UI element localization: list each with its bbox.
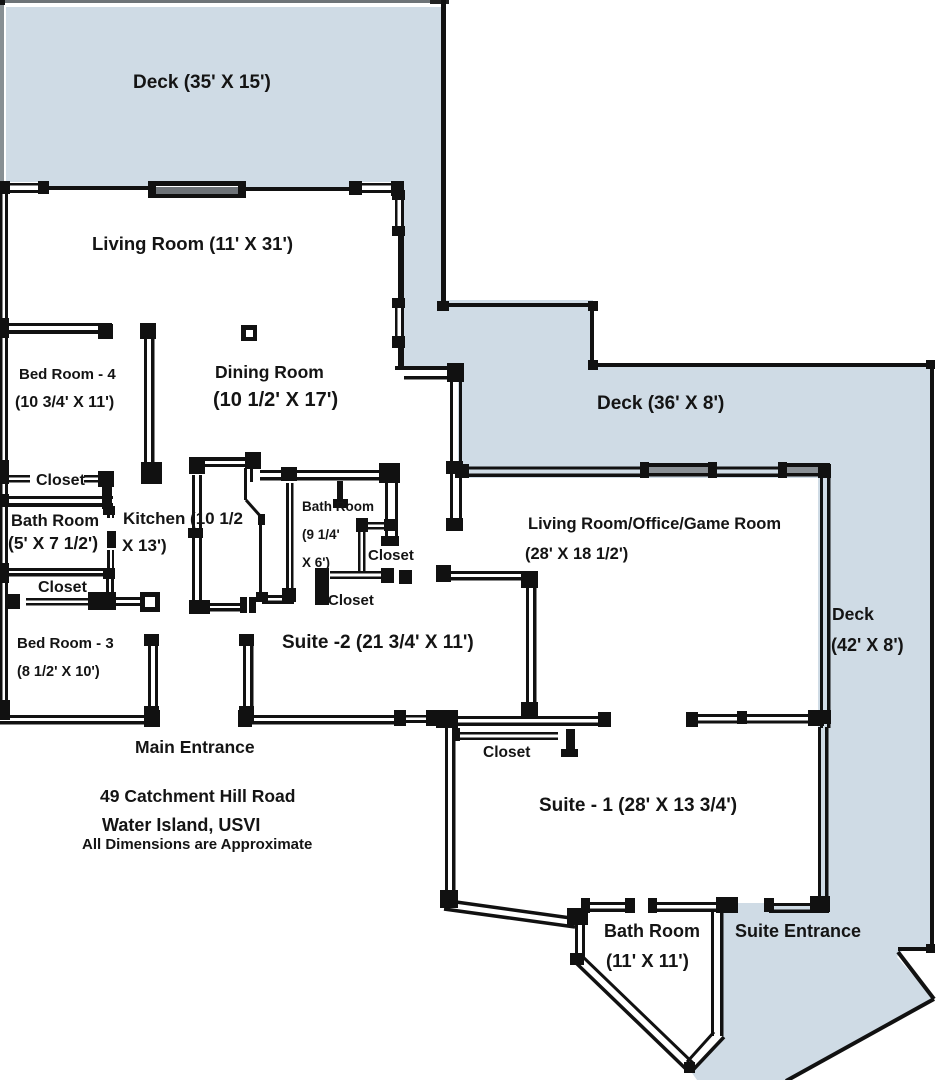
svg-text:(8 1/2' X 10'): (8 1/2' X 10') <box>17 664 100 680</box>
svg-text:Bed Room - 3: Bed Room - 3 <box>17 635 114 652</box>
svg-text:Main Entrance: Main Entrance <box>135 737 255 757</box>
svg-text:Water Island, USVI: Water Island, USVI <box>102 815 260 835</box>
svg-text:X 6'): X 6') <box>302 555 330 570</box>
svg-text:Closet: Closet <box>328 592 374 609</box>
svg-text:Dining Room: Dining Room <box>215 362 324 382</box>
svg-text:Bath Room: Bath Room <box>11 512 99 530</box>
svg-text:Bath Room: Bath Room <box>302 499 374 514</box>
svg-text:Suite Entrance: Suite Entrance <box>735 921 861 941</box>
svg-text:Deck: Deck <box>832 604 874 624</box>
svg-text:Suite - 1 (28' X 13 3/4'): Suite - 1 (28' X 13 3/4') <box>539 795 737 816</box>
svg-text:Deck (35' X 15'): Deck (35' X 15') <box>133 72 271 93</box>
svg-text:Closet: Closet <box>368 547 414 564</box>
svg-text:(10 3/4' X 11'): (10 3/4' X 11') <box>15 394 114 411</box>
svg-text:All Dimensions are Approximate: All Dimensions are Approximate <box>82 836 312 853</box>
svg-text:(5' X 7 1/2'): (5' X 7 1/2') <box>8 533 98 553</box>
svg-text:(9 1/4': (9 1/4' <box>302 527 340 542</box>
svg-text:Closet: Closet <box>38 579 88 596</box>
svg-text:Bath Room: Bath Room <box>604 921 700 941</box>
svg-text:(11' X 11'): (11' X 11') <box>606 950 689 971</box>
svg-text:(10 1/2' X 17'): (10 1/2' X 17') <box>213 389 338 411</box>
svg-text:(42' X 8'): (42' X 8') <box>831 635 904 655</box>
svg-text:X 13'): X 13') <box>122 536 167 555</box>
svg-text:Closet: Closet <box>36 472 86 489</box>
svg-text:Kitchen (10 1/2: Kitchen (10 1/2 <box>123 509 243 528</box>
svg-text:Living Room (11' X 31'): Living Room (11' X 31') <box>92 233 293 254</box>
svg-text:Deck (36' X 8'): Deck (36' X 8') <box>597 393 724 414</box>
svg-text:Suite -2 (21 3/4' X 11'): Suite -2 (21 3/4' X 11') <box>282 632 474 653</box>
svg-text:Bed Room - 4: Bed Room - 4 <box>19 366 116 383</box>
svg-text:Closet: Closet <box>483 744 530 761</box>
svg-text:49 Catchment Hill Road: 49 Catchment Hill Road <box>100 786 295 806</box>
svg-text:(28' X 18 1/2'): (28' X 18 1/2') <box>525 545 628 563</box>
svg-text:Living Room/Office/Game Room: Living Room/Office/Game Room <box>528 515 781 533</box>
